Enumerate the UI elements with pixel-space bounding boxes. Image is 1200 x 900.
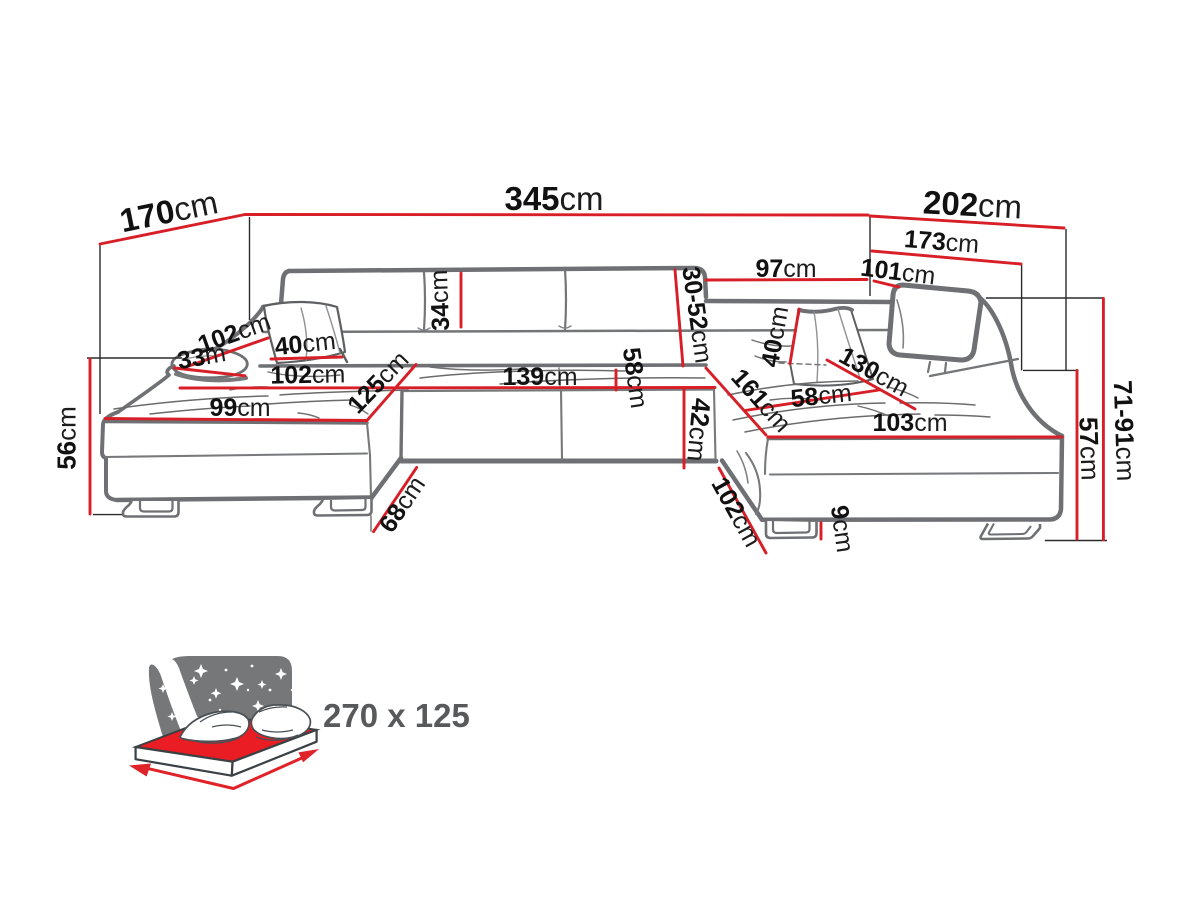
- svg-text:71-91cm: 71-91cm: [1108, 380, 1142, 482]
- svg-text:97cm: 97cm: [755, 255, 816, 283]
- svg-text:34cm: 34cm: [425, 269, 455, 331]
- svg-text:42cm: 42cm: [681, 397, 716, 463]
- svg-text:139cm: 139cm: [502, 363, 577, 391]
- svg-text:202cm: 202cm: [922, 183, 1023, 225]
- svg-text:57cm: 57cm: [1073, 416, 1105, 481]
- svg-text:102cm: 102cm: [270, 360, 346, 389]
- svg-text:103cm: 103cm: [872, 409, 947, 437]
- svg-text:345cm: 345cm: [504, 180, 603, 217]
- svg-text:173cm: 173cm: [903, 225, 980, 259]
- svg-text:56cm: 56cm: [52, 406, 82, 470]
- svg-text:270 x 125: 270 x 125: [323, 697, 470, 734]
- svg-text:99cm: 99cm: [209, 394, 270, 422]
